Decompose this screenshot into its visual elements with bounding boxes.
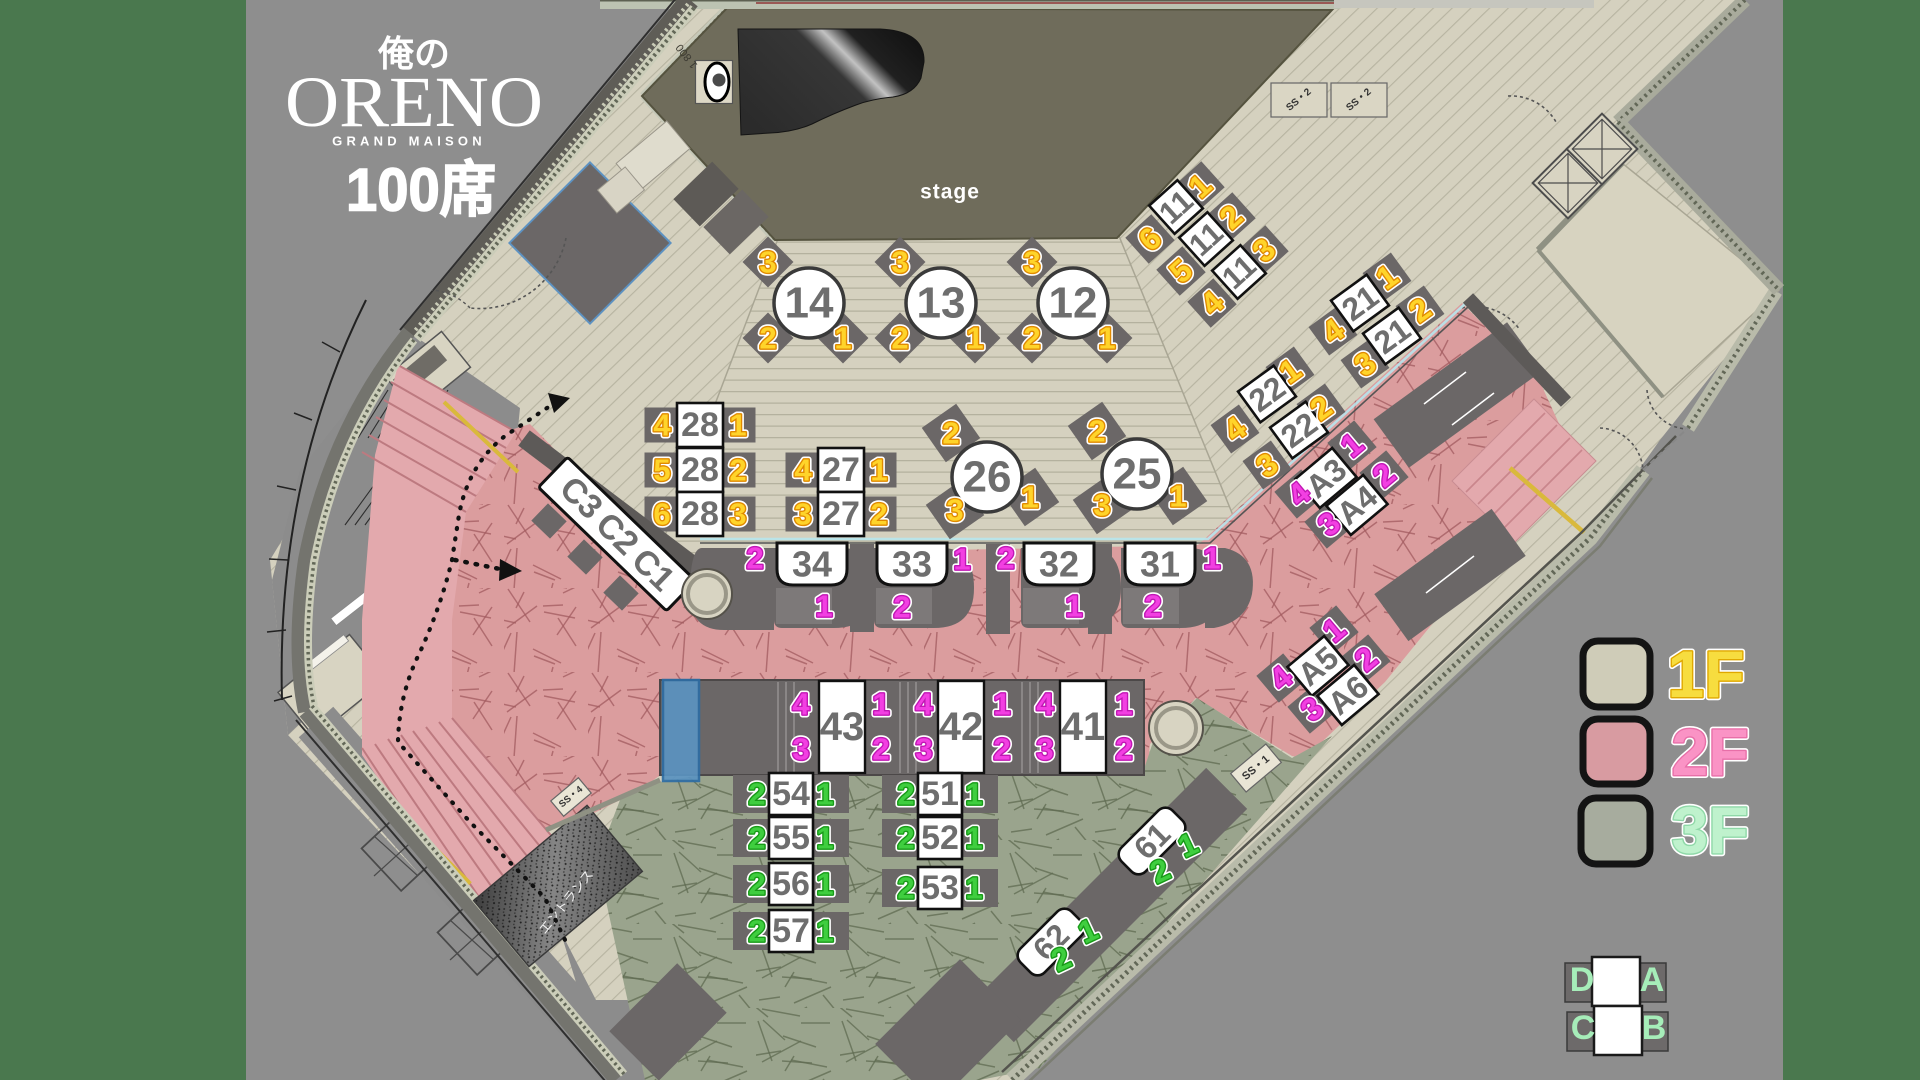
svg-text:D: D: [1570, 961, 1595, 999]
svg-text:3: 3: [891, 245, 908, 280]
svg-text:3: 3: [1023, 245, 1040, 280]
svg-text:2: 2: [748, 867, 765, 902]
svg-text:3: 3: [792, 732, 809, 767]
svg-text:57: 57: [772, 912, 810, 950]
svg-text:3: 3: [729, 497, 746, 532]
svg-text:1F: 1F: [1667, 637, 1744, 711]
svg-text:4: 4: [1036, 687, 1054, 722]
svg-text:1: 1: [1203, 541, 1220, 576]
svg-text:C: C: [1571, 1009, 1596, 1047]
svg-text:1: 1: [1065, 589, 1082, 624]
svg-text:56: 56: [772, 865, 810, 903]
svg-text:2F: 2F: [1671, 715, 1748, 789]
svg-text:26: 26: [963, 453, 1012, 502]
svg-text:1: 1: [816, 867, 833, 902]
svg-text:1: 1: [816, 777, 833, 812]
svg-text:stage: stage: [920, 181, 980, 204]
svg-text:2: 2: [1144, 589, 1161, 624]
svg-text:4: 4: [653, 408, 671, 443]
svg-text:1: 1: [1021, 480, 1038, 515]
svg-text:28: 28: [681, 406, 719, 444]
svg-text:43: 43: [820, 705, 865, 749]
svg-text:2: 2: [1023, 321, 1040, 356]
svg-text:2: 2: [748, 821, 765, 856]
svg-text:3: 3: [946, 493, 963, 528]
svg-text:1: 1: [965, 871, 982, 906]
svg-text:2: 2: [942, 416, 959, 451]
svg-text:1: 1: [965, 777, 982, 812]
svg-text:1: 1: [993, 687, 1010, 722]
svg-text:1: 1: [870, 453, 887, 488]
svg-text:53: 53: [921, 869, 959, 907]
svg-text:54: 54: [772, 775, 810, 813]
svg-text:GRAND MAISON: GRAND MAISON: [332, 134, 486, 149]
svg-text:13: 13: [917, 279, 966, 328]
svg-text:28: 28: [681, 495, 719, 533]
svg-text:55: 55: [772, 819, 810, 857]
svg-text:27: 27: [822, 495, 860, 533]
svg-text:2: 2: [1115, 732, 1132, 767]
svg-text:4: 4: [915, 687, 933, 722]
svg-text:28: 28: [681, 451, 719, 489]
svg-text:25: 25: [1113, 450, 1162, 499]
svg-text:2: 2: [897, 777, 914, 812]
svg-text:2: 2: [897, 821, 914, 856]
svg-text:4: 4: [792, 687, 810, 722]
svg-text:2: 2: [897, 871, 914, 906]
svg-text:1: 1: [1169, 479, 1186, 514]
svg-text:3: 3: [1036, 732, 1053, 767]
svg-text:2: 2: [872, 732, 889, 767]
svg-text:34: 34: [792, 544, 832, 585]
svg-text:1: 1: [872, 687, 889, 722]
svg-text:1: 1: [1098, 321, 1115, 356]
svg-text:51: 51: [921, 775, 959, 813]
svg-text:12: 12: [1049, 279, 1098, 328]
svg-text:42: 42: [939, 705, 984, 749]
svg-text:5: 5: [653, 453, 670, 488]
svg-text:2: 2: [891, 321, 908, 356]
svg-text:31: 31: [1140, 544, 1180, 585]
svg-text:1: 1: [815, 589, 832, 624]
svg-text:2: 2: [870, 497, 887, 532]
svg-text:A: A: [1640, 961, 1665, 999]
svg-text:2: 2: [748, 777, 765, 812]
svg-text:1: 1: [966, 321, 983, 356]
svg-text:1: 1: [729, 408, 746, 443]
svg-text:2: 2: [993, 732, 1010, 767]
svg-text:52: 52: [921, 819, 959, 857]
svg-text:3: 3: [794, 497, 811, 532]
svg-text:32: 32: [1039, 544, 1079, 585]
svg-text:2: 2: [893, 590, 910, 625]
svg-text:2: 2: [1088, 414, 1105, 449]
svg-text:ORENO: ORENO: [285, 62, 543, 142]
svg-text:100席: 100席: [346, 157, 496, 224]
svg-text:2: 2: [729, 453, 746, 488]
svg-text:1: 1: [834, 321, 851, 356]
svg-text:3: 3: [915, 732, 932, 767]
svg-text:3: 3: [759, 245, 776, 280]
svg-text:2: 2: [997, 541, 1014, 576]
svg-text:3F: 3F: [1671, 793, 1748, 867]
svg-text:B: B: [1642, 1009, 1667, 1047]
svg-text:1: 1: [816, 821, 833, 856]
svg-text:4: 4: [794, 453, 812, 488]
svg-text:41: 41: [1061, 705, 1106, 749]
svg-text:2: 2: [746, 541, 763, 576]
svg-text:3: 3: [1093, 488, 1110, 523]
svg-text:2: 2: [759, 321, 776, 356]
svg-text:1: 1: [953, 542, 970, 577]
svg-text:1: 1: [816, 914, 833, 949]
svg-text:1: 1: [1115, 687, 1132, 722]
svg-text:27: 27: [822, 451, 860, 489]
svg-text:14: 14: [785, 279, 834, 328]
svg-text:2: 2: [748, 914, 765, 949]
svg-text:1: 1: [965, 821, 982, 856]
svg-text:33: 33: [892, 544, 932, 585]
